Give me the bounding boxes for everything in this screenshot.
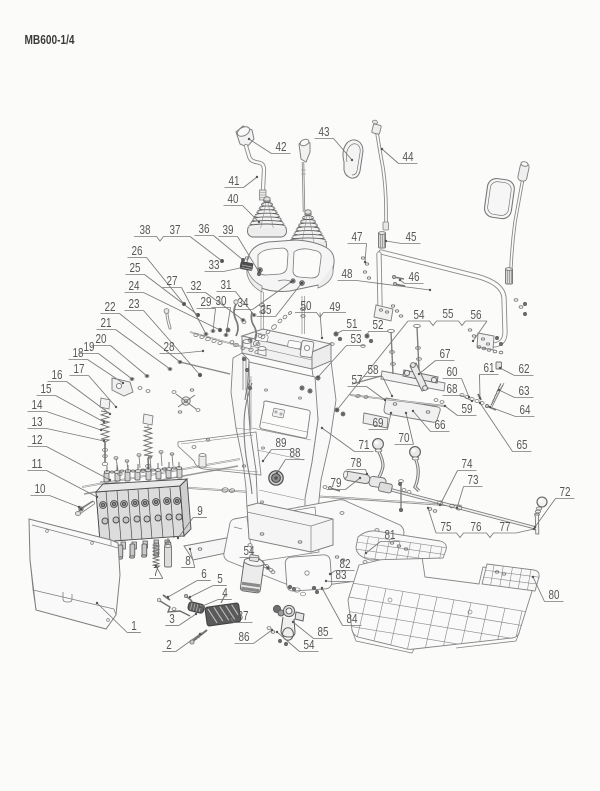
svg-text:13: 13 — [32, 414, 43, 429]
svg-text:63: 63 — [519, 383, 530, 398]
svg-text:58: 58 — [368, 362, 379, 377]
svg-text:72: 72 — [560, 484, 571, 499]
svg-text:85: 85 — [318, 624, 329, 639]
svg-text:39: 39 — [223, 222, 234, 237]
svg-text:37: 37 — [170, 222, 181, 237]
svg-text:67: 67 — [440, 346, 451, 361]
svg-text:76: 76 — [471, 519, 482, 534]
svg-text:15: 15 — [41, 381, 52, 396]
svg-text:3: 3 — [169, 611, 175, 626]
svg-text:43: 43 — [319, 124, 330, 139]
svg-text:29: 29 — [201, 294, 212, 309]
svg-text:10: 10 — [35, 481, 46, 496]
svg-text:89: 89 — [276, 435, 287, 450]
svg-text:68: 68 — [447, 381, 458, 396]
svg-text:64: 64 — [520, 402, 531, 417]
svg-text:69: 69 — [373, 415, 384, 430]
svg-text:71: 71 — [359, 437, 370, 452]
svg-text:48: 48 — [342, 266, 353, 281]
svg-text:81: 81 — [385, 527, 396, 542]
svg-text:80: 80 — [549, 587, 560, 602]
svg-text:45: 45 — [406, 229, 417, 244]
svg-text:86: 86 — [239, 629, 250, 644]
svg-text:79: 79 — [331, 475, 342, 490]
svg-text:33: 33 — [209, 257, 220, 272]
svg-text:46: 46 — [409, 269, 420, 284]
svg-text:54: 54 — [244, 543, 255, 558]
svg-text:73: 73 — [468, 472, 479, 487]
svg-text:40: 40 — [228, 191, 239, 206]
svg-text:52: 52 — [373, 317, 384, 332]
svg-text:41: 41 — [229, 173, 240, 188]
svg-text:77: 77 — [500, 519, 511, 534]
svg-text:18: 18 — [73, 345, 84, 360]
svg-text:59: 59 — [462, 401, 473, 416]
svg-text:1: 1 — [131, 618, 137, 633]
svg-text:88: 88 — [290, 445, 301, 460]
svg-text:11: 11 — [32, 456, 43, 471]
svg-text:2: 2 — [166, 637, 172, 652]
svg-text:28: 28 — [164, 339, 175, 354]
svg-text:44: 44 — [403, 149, 414, 164]
svg-text:60: 60 — [447, 364, 458, 379]
svg-text:54: 54 — [304, 637, 315, 652]
svg-text:12: 12 — [32, 432, 43, 447]
svg-text:84: 84 — [347, 611, 358, 626]
svg-text:MB600-1/4: MB600-1/4 — [25, 33, 75, 47]
svg-text:21: 21 — [101, 315, 112, 330]
svg-text:55: 55 — [443, 306, 454, 321]
svg-text:36: 36 — [199, 221, 210, 236]
svg-text:87: 87 — [238, 608, 249, 623]
svg-text:66: 66 — [435, 417, 446, 432]
svg-text:49: 49 — [330, 299, 341, 314]
svg-text:22: 22 — [105, 299, 116, 314]
svg-text:51: 51 — [347, 316, 358, 331]
svg-text:34: 34 — [238, 295, 249, 310]
svg-text:38: 38 — [140, 222, 151, 237]
svg-text:78: 78 — [351, 455, 362, 470]
svg-text:19: 19 — [84, 339, 95, 354]
svg-text:23: 23 — [129, 296, 140, 311]
svg-text:9: 9 — [197, 503, 203, 518]
svg-text:25: 25 — [130, 260, 141, 275]
svg-text:74: 74 — [462, 456, 473, 471]
svg-text:32: 32 — [191, 278, 202, 293]
svg-text:75: 75 — [441, 519, 452, 534]
svg-text:17: 17 — [74, 361, 85, 376]
svg-text:47: 47 — [352, 229, 363, 244]
svg-text:61: 61 — [484, 360, 495, 375]
svg-text:24: 24 — [129, 278, 140, 293]
svg-text:70: 70 — [399, 430, 410, 445]
svg-text:83: 83 — [336, 567, 347, 582]
svg-text:56: 56 — [471, 307, 482, 322]
svg-text:53: 53 — [351, 331, 362, 346]
svg-text:26: 26 — [132, 243, 143, 258]
svg-text:57: 57 — [352, 372, 363, 387]
svg-text:50: 50 — [301, 298, 312, 313]
svg-text:4: 4 — [222, 585, 228, 600]
svg-text:20: 20 — [96, 331, 107, 346]
svg-text:14: 14 — [32, 397, 43, 412]
svg-text:16: 16 — [52, 367, 63, 382]
svg-text:54: 54 — [414, 307, 425, 322]
svg-text:42: 42 — [276, 139, 287, 154]
svg-text:62: 62 — [519, 361, 530, 376]
svg-text:5: 5 — [217, 571, 223, 586]
svg-text:35: 35 — [261, 302, 272, 317]
svg-text:8: 8 — [185, 553, 191, 568]
svg-text:65: 65 — [517, 437, 528, 452]
svg-text:31: 31 — [221, 277, 232, 292]
svg-text:6: 6 — [201, 566, 207, 581]
svg-text:27: 27 — [167, 273, 178, 288]
